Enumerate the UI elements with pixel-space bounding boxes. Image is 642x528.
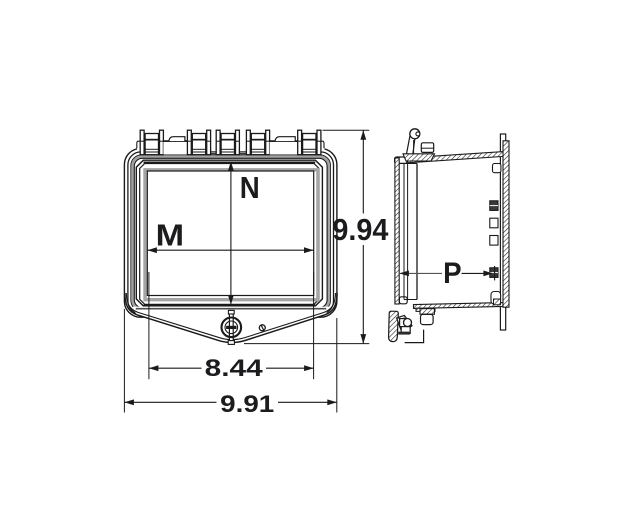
svg-text:M: M (156, 218, 185, 252)
svg-text:9.94: 9.94 (332, 213, 388, 247)
svg-text:9.91: 9.91 (220, 391, 274, 418)
svg-text:P: P (443, 257, 462, 290)
svg-text:N: N (240, 171, 260, 205)
svg-text:8.44: 8.44 (205, 355, 264, 382)
